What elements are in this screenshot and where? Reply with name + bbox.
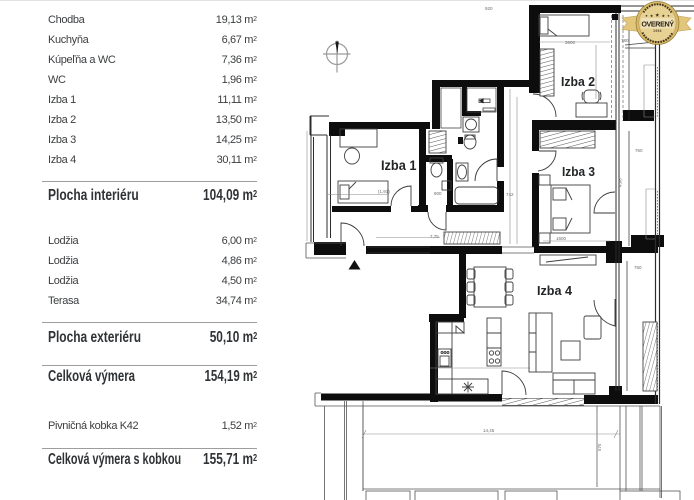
- svg-text:575: 575: [597, 443, 602, 451]
- svg-text:920: 920: [485, 6, 493, 11]
- svg-text:OVERENÝ: OVERENÝ: [641, 20, 674, 29]
- svg-text:780: 780: [621, 38, 629, 43]
- svg-text:(1,91): (1,91): [378, 189, 390, 194]
- svg-text:Izba 2: Izba 2: [561, 74, 595, 89]
- svg-text:760: 760: [635, 148, 643, 153]
- svg-text:1600: 1600: [556, 236, 567, 241]
- svg-text:3600: 3600: [565, 40, 576, 45]
- svg-text:14,45: 14,45: [483, 428, 495, 433]
- svg-text:Izba 3: Izba 3: [562, 164, 595, 179]
- svg-text:7,75: 7,75: [430, 234, 439, 239]
- svg-text:1994: 1994: [653, 29, 662, 33]
- svg-text:Izba 4: Izba 4: [537, 283, 573, 298]
- svg-text:760: 760: [634, 265, 642, 270]
- svg-text:Izba 1: Izba 1: [381, 158, 417, 173]
- svg-text:4,08: 4,08: [618, 178, 623, 187]
- svg-text:742: 742: [506, 192, 514, 197]
- svg-text:900: 900: [434, 191, 442, 196]
